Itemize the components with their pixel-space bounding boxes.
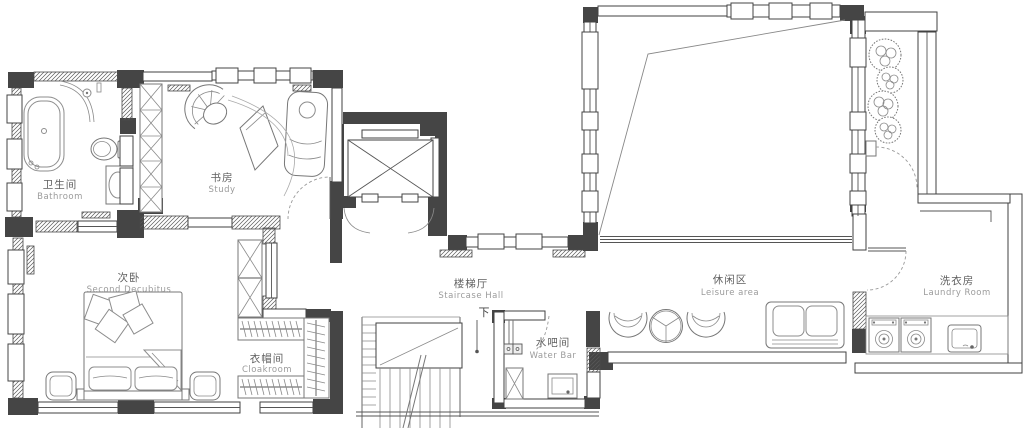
leisure-furniture: [609, 302, 844, 348]
laundry-room-label-zh: 洗衣房: [940, 274, 975, 287]
laundry-fixtures: [866, 248, 1008, 354]
room-label-leisure-area: 休闲区 Leisure area: [701, 273, 759, 298]
bathroom-label-zh: 卫生间: [43, 178, 78, 191]
second-bedroom-label-en: Second Decubitus: [87, 285, 172, 295]
washing-machine-icon: [869, 318, 899, 352]
washing-machine-icon: [901, 318, 931, 352]
leisure-area-label-en: Leisure area: [701, 288, 759, 298]
cloakroom-label-zh: 衣帽间: [250, 352, 285, 365]
laundry-sink-icon: [948, 325, 981, 352]
stairs-down-arrow: [475, 320, 479, 353]
side-table-icon: [650, 310, 683, 343]
bedroom-furniture: [46, 291, 220, 400]
bathroom-fixtures: [24, 81, 133, 204]
corridor-door: [866, 141, 917, 188]
bathroom-label-en: Bathroom: [37, 192, 83, 202]
bathtub-icon: [24, 97, 64, 171]
bar-sink-icon: [548, 374, 577, 398]
room-label-water-bar: 水吧间 Water Bar: [530, 336, 577, 361]
room-label-staircase-hall: 楼梯厅 Staircase Hall: [438, 277, 503, 301]
plant-icon: [869, 39, 901, 71]
study-door: [288, 177, 330, 219]
floor-plan: 卫生间 Bathroom 书房 Study 次卧 Second Decubitu…: [0, 0, 1024, 428]
cloakroom-label-en: Cloakroom: [242, 365, 292, 375]
room-label-cloakroom: 衣帽间 Cloakroom: [242, 352, 292, 375]
shower-icon: [60, 81, 101, 122]
plant-icon: [877, 67, 903, 93]
study-furniture: [140, 77, 330, 219]
room-label-study: 书房 Study: [208, 171, 235, 195]
desk-icon: [240, 106, 278, 170]
sliding-window: [600, 237, 852, 243]
staircase: [356, 317, 599, 428]
study-label-zh: 书房: [211, 171, 234, 184]
laundry-door: [867, 248, 906, 290]
water-bar-label-en: Water Bar: [530, 351, 577, 361]
bookshelf-icon: [140, 84, 162, 212]
water-dispenser-icon: [504, 320, 522, 354]
room-label-bathroom: 卫生间 Bathroom: [37, 178, 83, 202]
plant-icon: [875, 117, 901, 143]
staircase-hall-label-zh: 楼梯厅: [454, 277, 489, 290]
room-label-laundry-room: 洗衣房 Laundry Room: [923, 274, 991, 298]
study-label-en: Study: [208, 185, 235, 195]
second-bedroom-label-zh: 次卧: [118, 271, 141, 284]
plant-icon: [868, 91, 898, 121]
staircase-hall-label-en: Staircase Hall: [438, 291, 503, 301]
elevator: [344, 130, 434, 233]
armchair-icon: [609, 312, 647, 337]
leisure-area-label-zh: 休闲区: [713, 273, 748, 286]
chaise-icon: [284, 91, 328, 177]
cabinet-icon: [506, 368, 523, 399]
nightstand-icon: [190, 372, 220, 400]
wardrobe-icon: [238, 240, 262, 317]
nightstand-icon: [46, 372, 76, 400]
bed-icon: [77, 291, 189, 400]
stairs-down-label: 下: [479, 306, 490, 319]
big-room: [599, 20, 845, 235]
floor-plan-drawing: 卫生间 Bathroom 书房 Study 次卧 Second Decubitu…: [0, 0, 1024, 428]
room-label-second-bedroom: 次卧 Second Decubitus: [87, 271, 172, 295]
laundry-room-label-en: Laundry Room: [923, 288, 991, 298]
water-bar-label-zh: 水吧间: [536, 336, 571, 349]
sofa-icon: [766, 302, 844, 348]
corridor: [866, 39, 917, 188]
armchair-icon: [687, 312, 725, 337]
